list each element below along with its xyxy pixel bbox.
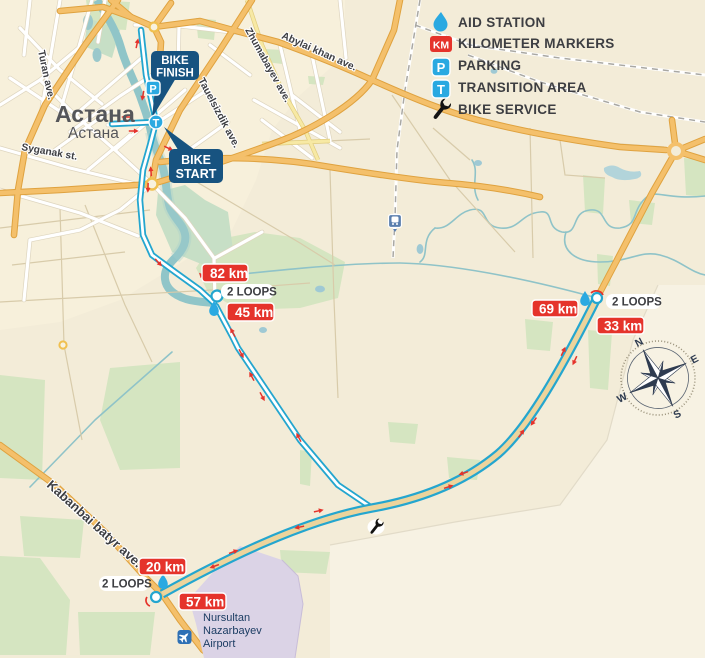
svg-text:2 LOOPS: 2 LOOPS (227, 287, 277, 299)
svg-text:BIKE SERVICE: BIKE SERVICE (458, 102, 557, 117)
svg-text:T: T (437, 82, 445, 97)
svg-text:Nursultan: Nursultan (203, 612, 250, 624)
svg-text:45 km: 45 km (235, 305, 273, 320)
svg-text:82 km: 82 km (210, 266, 248, 281)
svg-text:START: START (176, 167, 217, 181)
svg-text:2 LOOPS: 2 LOOPS (612, 297, 662, 309)
svg-text:BIKE: BIKE (161, 55, 189, 67)
svg-text:FINISH: FINISH (156, 68, 194, 80)
svg-text:57 km: 57 km (186, 595, 224, 610)
svg-text:AID STATION: AID STATION (458, 15, 546, 30)
svg-text:Airport: Airport (203, 638, 235, 650)
svg-text:Астана: Астана (68, 125, 119, 142)
svg-text:Астана: Астана (55, 101, 135, 127)
svg-text:69 km: 69 km (539, 302, 577, 317)
svg-text:KILOMETER MARKERS: KILOMETER MARKERS (458, 36, 615, 51)
svg-text:2 LOOPS: 2 LOOPS (102, 579, 152, 591)
svg-text:P: P (437, 60, 446, 75)
svg-text:BIKE: BIKE (181, 153, 211, 167)
svg-text:TRANSITION AREA: TRANSITION AREA (458, 80, 587, 95)
svg-text:T: T (153, 118, 160, 130)
svg-text:PARKING: PARKING (458, 58, 521, 73)
svg-text:33 km: 33 km (604, 319, 642, 334)
svg-text:Nazarbayev: Nazarbayev (203, 625, 262, 637)
svg-text:KM: KM (433, 40, 450, 52)
svg-text:P: P (149, 84, 156, 96)
svg-text:20 km: 20 km (146, 560, 184, 575)
